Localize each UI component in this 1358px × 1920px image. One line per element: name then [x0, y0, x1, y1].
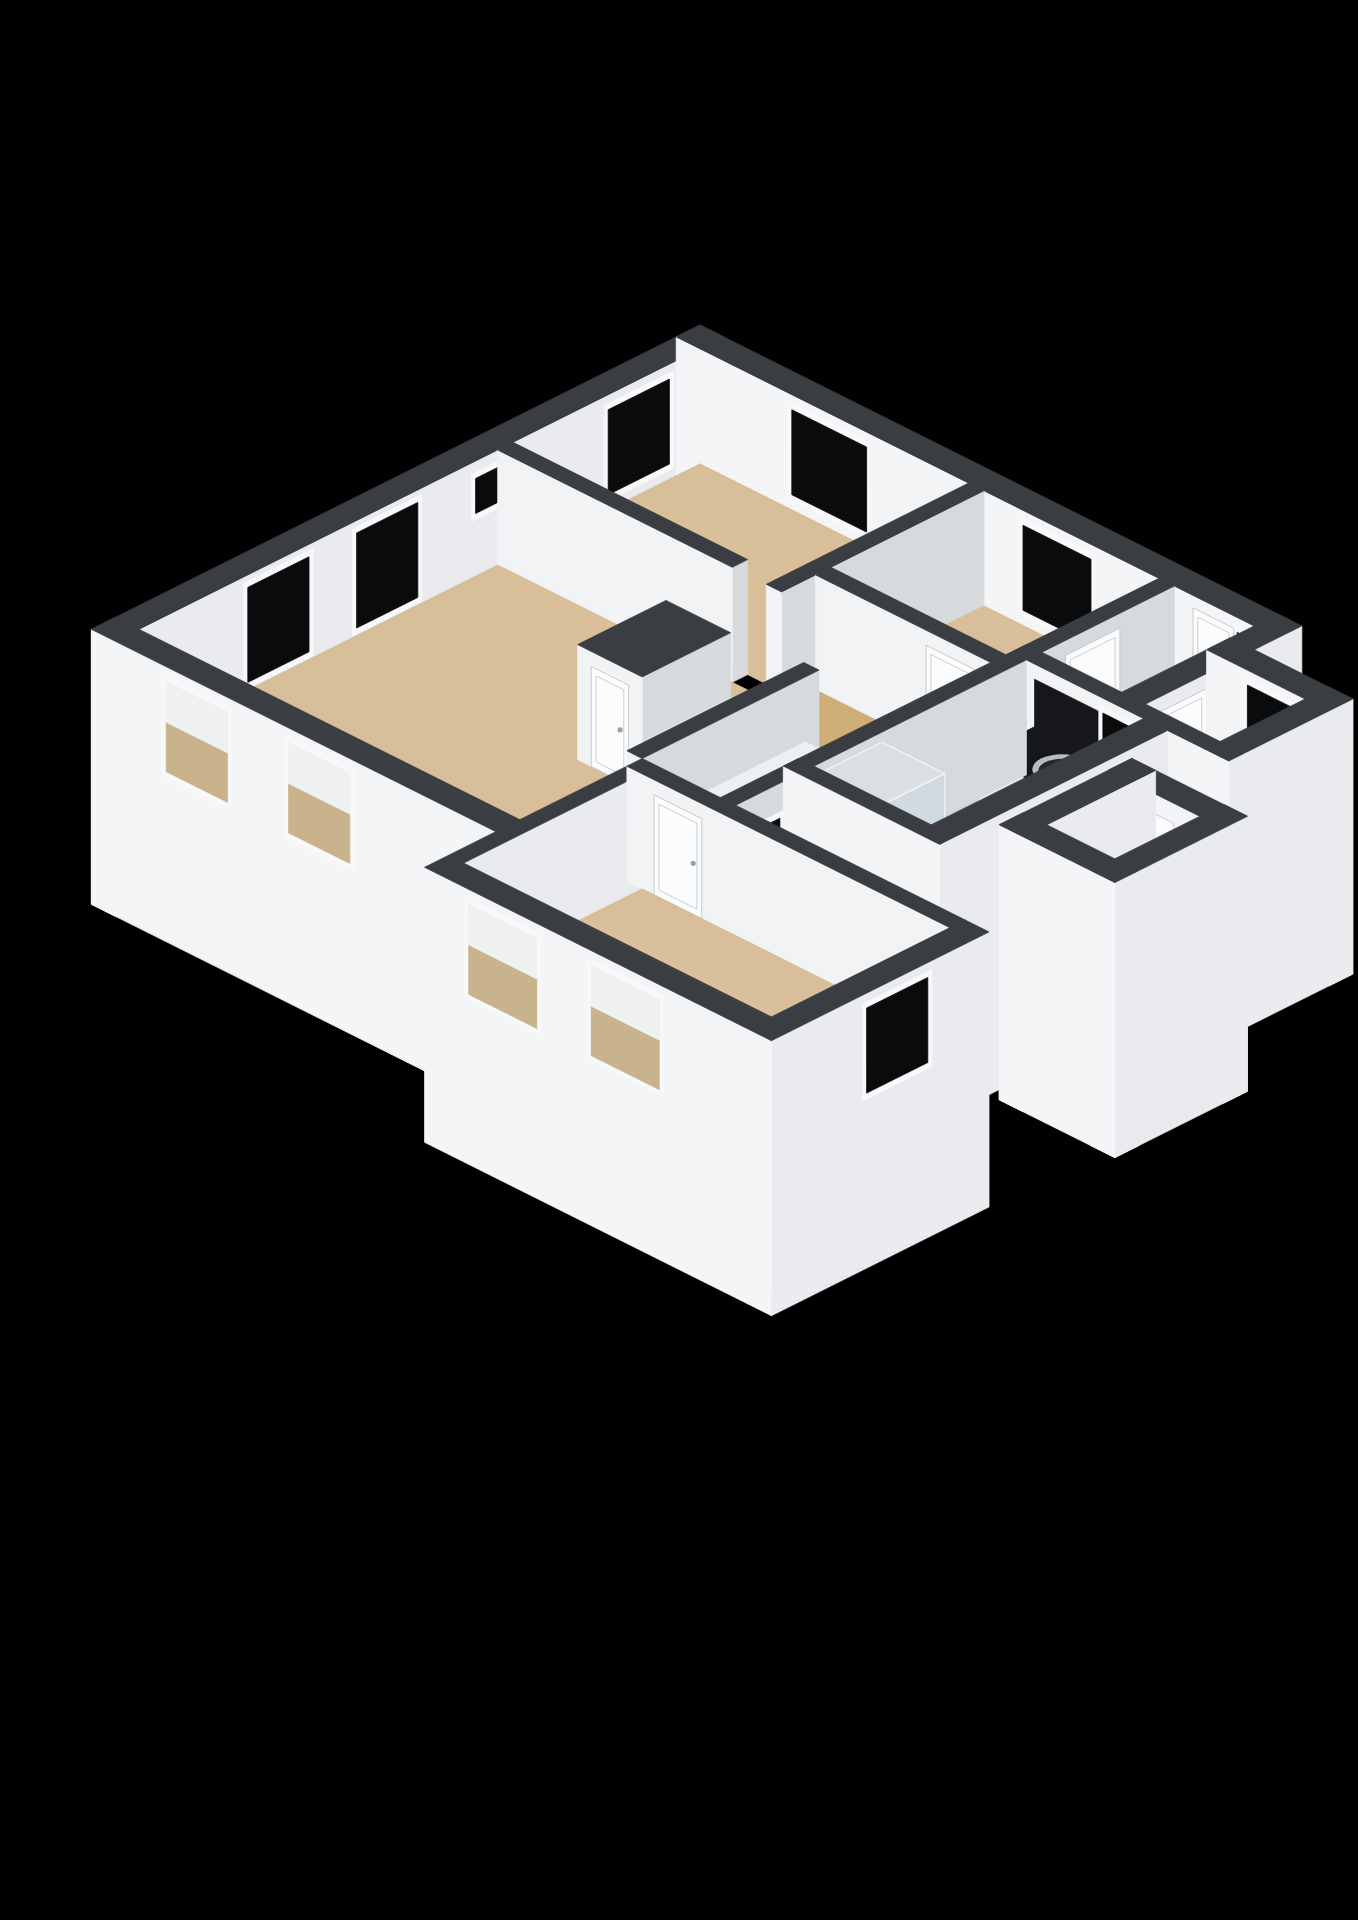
door-handle-icon: [618, 727, 623, 732]
door-handle-icon: [691, 861, 696, 866]
wall-storage-south: [999, 813, 1138, 1158]
door-closet: [591, 666, 628, 785]
floorplan-stage: [0, 0, 1358, 1920]
floorplan-3d-canvas: [0, 0, 1358, 1920]
